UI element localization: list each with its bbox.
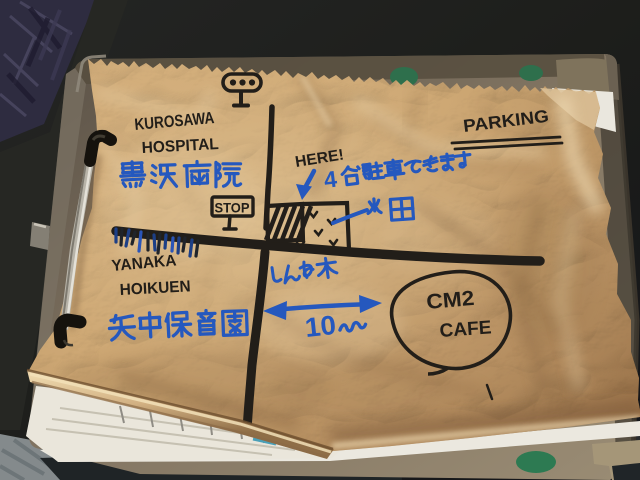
svg-text:STOP: STOP xyxy=(215,200,250,216)
svg-text:CM2: CM2 xyxy=(425,287,475,314)
svg-text:10: 10 xyxy=(303,310,337,343)
svg-text:CAFE: CAFE xyxy=(439,317,492,342)
